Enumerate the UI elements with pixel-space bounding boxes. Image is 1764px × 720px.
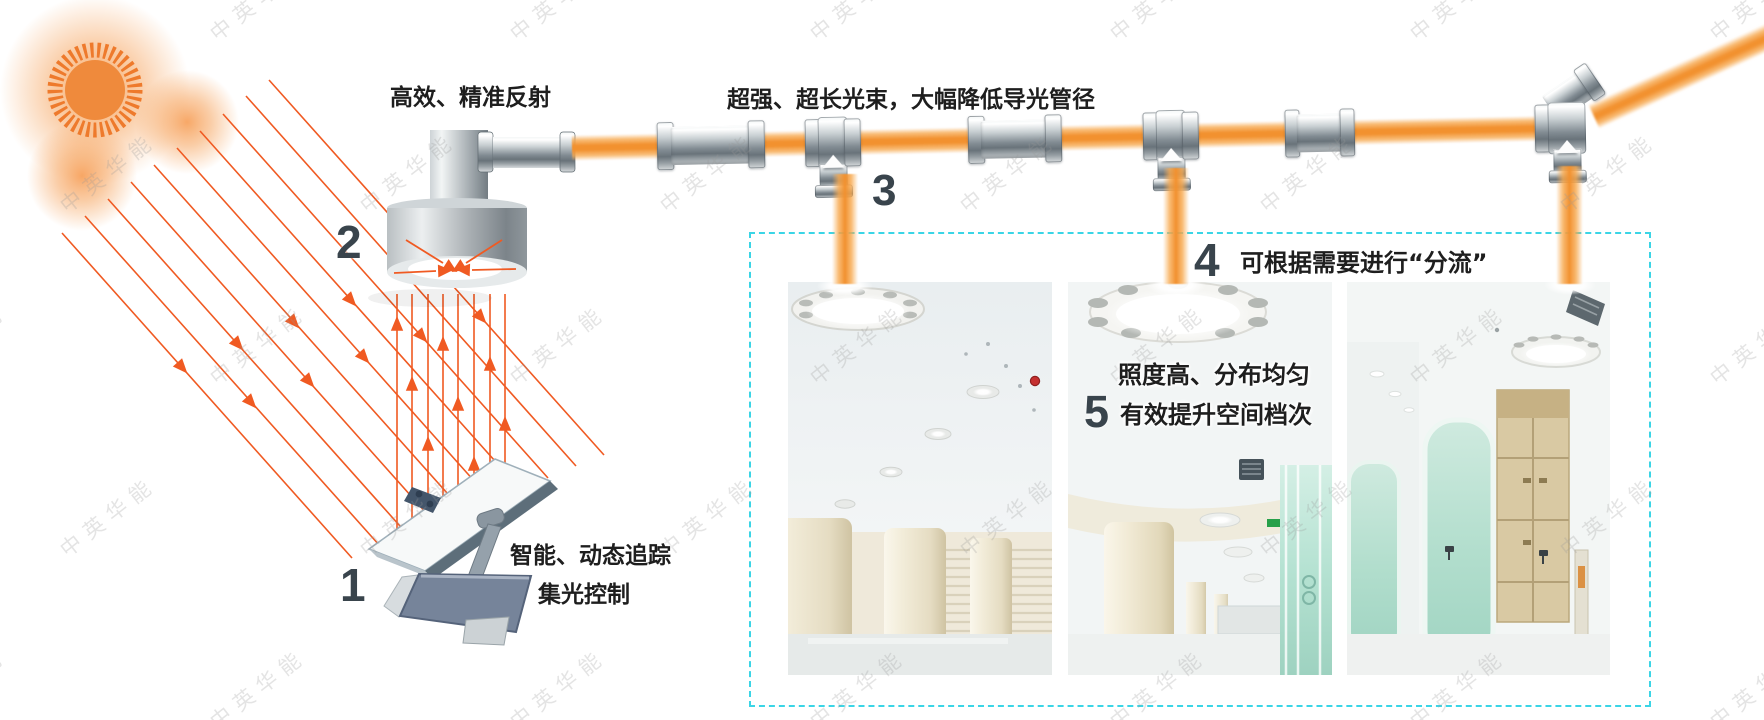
glass-door <box>1280 465 1332 675</box>
step-number-5: 5 <box>1084 389 1109 434</box>
watermark-text: 中英华能 <box>1403 0 1513 48</box>
collector-drum <box>368 130 575 307</box>
tee-junction <box>805 129 862 156</box>
pipe-coupler <box>657 131 766 159</box>
wye-junction <box>1535 114 1600 141</box>
step1-label-line1: 智能、动态追踪 <box>510 536 671 570</box>
reception-desk <box>1218 606 1290 634</box>
step5-label-line1: 照度高、分布均匀 <box>1118 355 1310 390</box>
watermark-text: 中英华能 <box>1703 640 1764 720</box>
photo-corridor-glass <box>1347 282 1610 675</box>
watermark-text: 中英华能 <box>1103 0 1213 48</box>
photo-hall-skylight <box>1068 282 1332 675</box>
flow-chevron-icon <box>1160 148 1182 161</box>
watermark-text: 中英华能 <box>1703 296 1764 391</box>
step1-label-line2: 集光控制 <box>538 575 630 609</box>
branch-beam-up-right <box>1588 17 1764 129</box>
sun-icon <box>0 0 239 231</box>
exit-sign <box>1267 519 1280 527</box>
vent-grille <box>1239 459 1264 480</box>
daylighting-system-diagram: 1 智能、动态追踪 集光控制 2 高效、精准反射 3 超强、超长光束，大幅降低导… <box>0 0 1764 720</box>
step5-label-line2: 有效提升空间档次 <box>1120 395 1312 430</box>
collector-scene <box>0 0 770 720</box>
fire-alarm <box>1030 376 1039 385</box>
photo-lobby-columns <box>788 282 1052 675</box>
drop-beam-3 <box>1556 166 1583 284</box>
drop-beam-1 <box>832 174 858 284</box>
flow-chevron-icon <box>822 155 844 168</box>
step-number-1: 1 <box>340 562 366 608</box>
step-number-4: 4 <box>1194 237 1220 283</box>
locker-cabinets <box>1497 390 1569 622</box>
floor <box>1347 634 1610 675</box>
step-number-3: 3 <box>872 169 896 213</box>
step-number-2: 2 <box>336 219 362 265</box>
pipe-coupler <box>1285 119 1356 146</box>
tee-junction <box>1143 122 1200 149</box>
watermark-text: 中英华能 <box>803 0 913 48</box>
flow-chevron-icon <box>1556 140 1578 153</box>
sprinkler <box>1495 328 1499 332</box>
pipe-coupler <box>968 125 1063 153</box>
drop-beam-2 <box>1163 168 1189 284</box>
step3-label: 超强、超长光束，大幅降低导光管径 <box>727 80 1095 114</box>
step2-label: 高效、精准反射 <box>390 78 551 112</box>
step4-label: 可根据需要进行“分流” <box>1240 243 1488 278</box>
